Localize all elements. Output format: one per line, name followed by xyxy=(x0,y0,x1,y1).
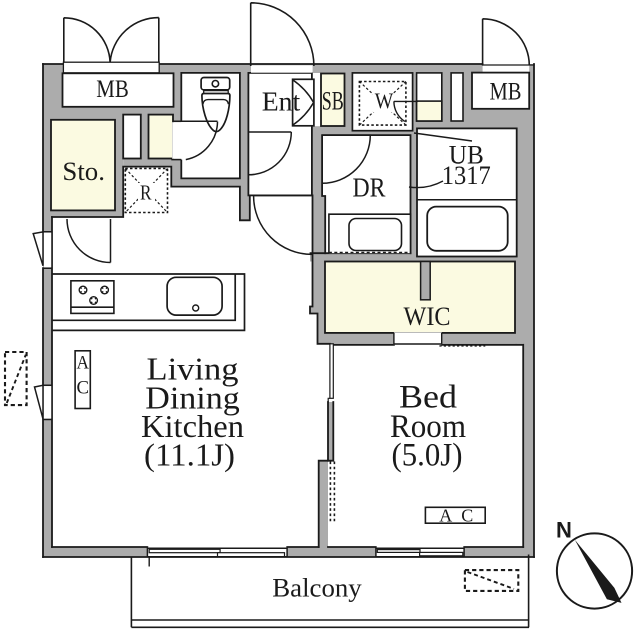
svg-text:R: R xyxy=(140,181,152,205)
svg-text:1317: 1317 xyxy=(442,161,491,190)
svg-text:Sto.: Sto. xyxy=(62,157,105,186)
svg-text:(11.1J): (11.1J) xyxy=(144,437,235,472)
svg-text:(5.0J): (5.0J) xyxy=(392,438,463,474)
svg-text:MB: MB xyxy=(96,74,129,103)
svg-text:N: N xyxy=(556,518,572,543)
svg-text:MB: MB xyxy=(490,79,522,106)
svg-text:A: A xyxy=(77,353,90,374)
svg-text:C: C xyxy=(77,378,90,399)
svg-text:Ent: Ent xyxy=(262,87,301,117)
svg-text:W: W xyxy=(375,88,394,113)
svg-text:SB: SB xyxy=(322,86,344,115)
svg-text:WIC: WIC xyxy=(404,302,451,331)
svg-text:DR: DR xyxy=(353,173,386,203)
svg-text:Balcony: Balcony xyxy=(272,574,362,603)
